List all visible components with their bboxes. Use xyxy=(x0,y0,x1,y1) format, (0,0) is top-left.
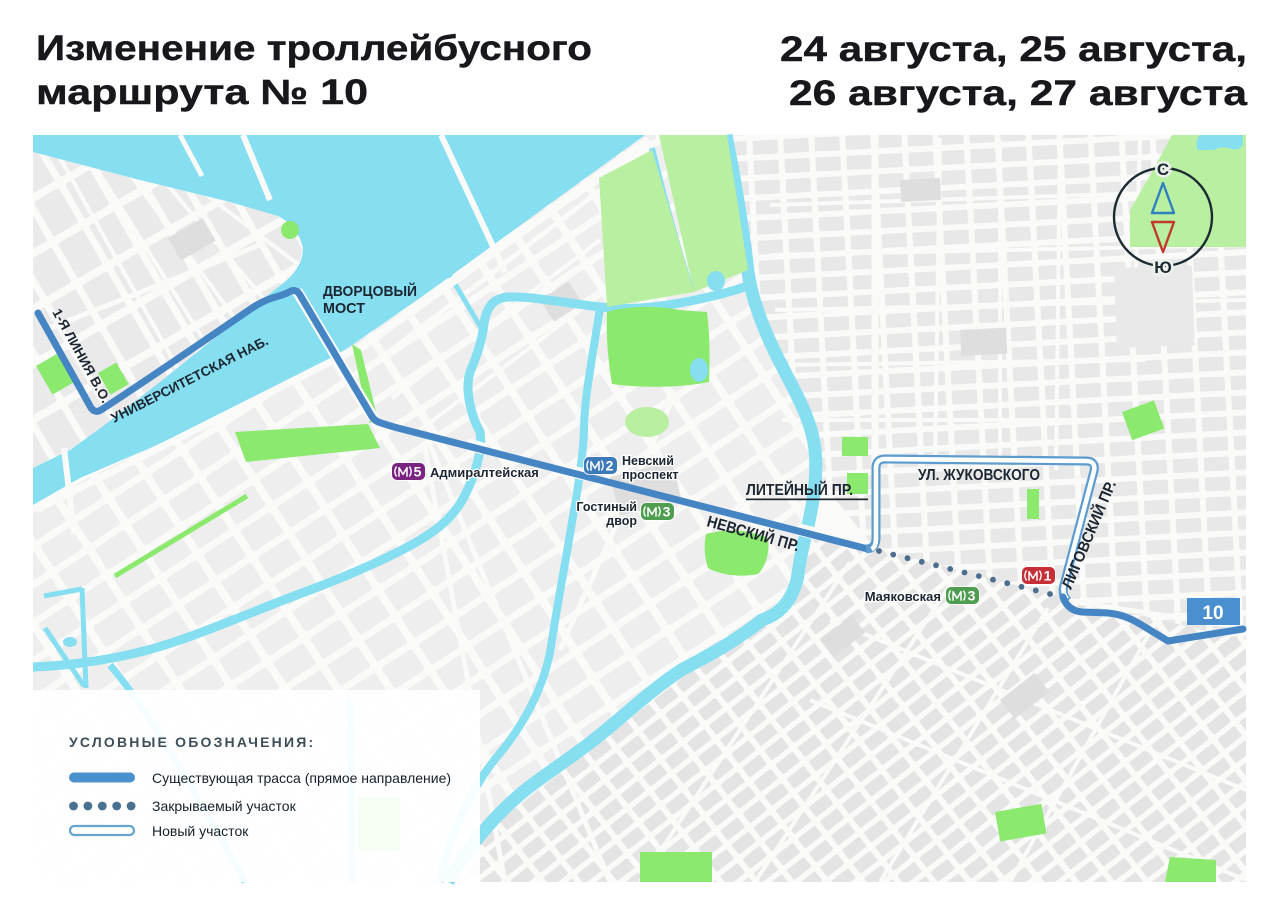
svg-text:ЛИТЕЙНЫЙ ПР.: ЛИТЕЙНЫЙ ПР. xyxy=(746,481,853,499)
svg-text:ДВОРЦОВЫЙ: ДВОРЦОВЫЙ xyxy=(323,282,417,300)
svg-text:Новый участок: Новый участок xyxy=(152,823,249,839)
svg-text:Гостиный: Гостиный xyxy=(576,500,637,514)
svg-text:Адмиралтейская: Адмиралтейская xyxy=(430,465,539,480)
svg-text:Невский: Невский xyxy=(622,454,674,468)
svg-text:УЛ. ЖУКОВСКОГО: УЛ. ЖУКОВСКОГО xyxy=(918,467,1040,484)
svg-text:Ю: Ю xyxy=(1154,258,1172,277)
svg-text:1: 1 xyxy=(1044,568,1052,584)
svg-text:С: С xyxy=(1157,160,1169,179)
svg-text:2: 2 xyxy=(606,458,614,474)
svg-text:проспект: проспект xyxy=(622,468,679,482)
svg-text:маршрута № 10: маршрута № 10 xyxy=(36,73,368,112)
svg-text:УСЛОВНЫЕ ОБОЗНАЧЕНИЯ:: УСЛОВНЫЕ ОБОЗНАЧЕНИЯ: xyxy=(69,734,315,750)
svg-text:3: 3 xyxy=(663,504,671,520)
svg-text:Маяковская: Маяковская xyxy=(865,589,941,604)
svg-text:Существующая трасса (прямое на: Существующая трасса (прямое направление) xyxy=(152,770,451,786)
svg-text:5: 5 xyxy=(414,464,422,480)
svg-text:Изменение троллейбусного: Изменение троллейбусного xyxy=(36,29,592,68)
svg-text:Закрываемый участок: Закрываемый участок xyxy=(152,798,297,814)
svg-text:10: 10 xyxy=(1202,603,1223,624)
svg-text:24 августа, 25 августа,: 24 августа, 25 августа, xyxy=(780,30,1247,69)
svg-text:3: 3 xyxy=(968,588,976,604)
svg-text:26 августа, 27 августа: 26 августа, 27 августа xyxy=(789,74,1248,113)
svg-text:МОСТ: МОСТ xyxy=(323,300,365,317)
svg-text:двор: двор xyxy=(606,514,637,528)
